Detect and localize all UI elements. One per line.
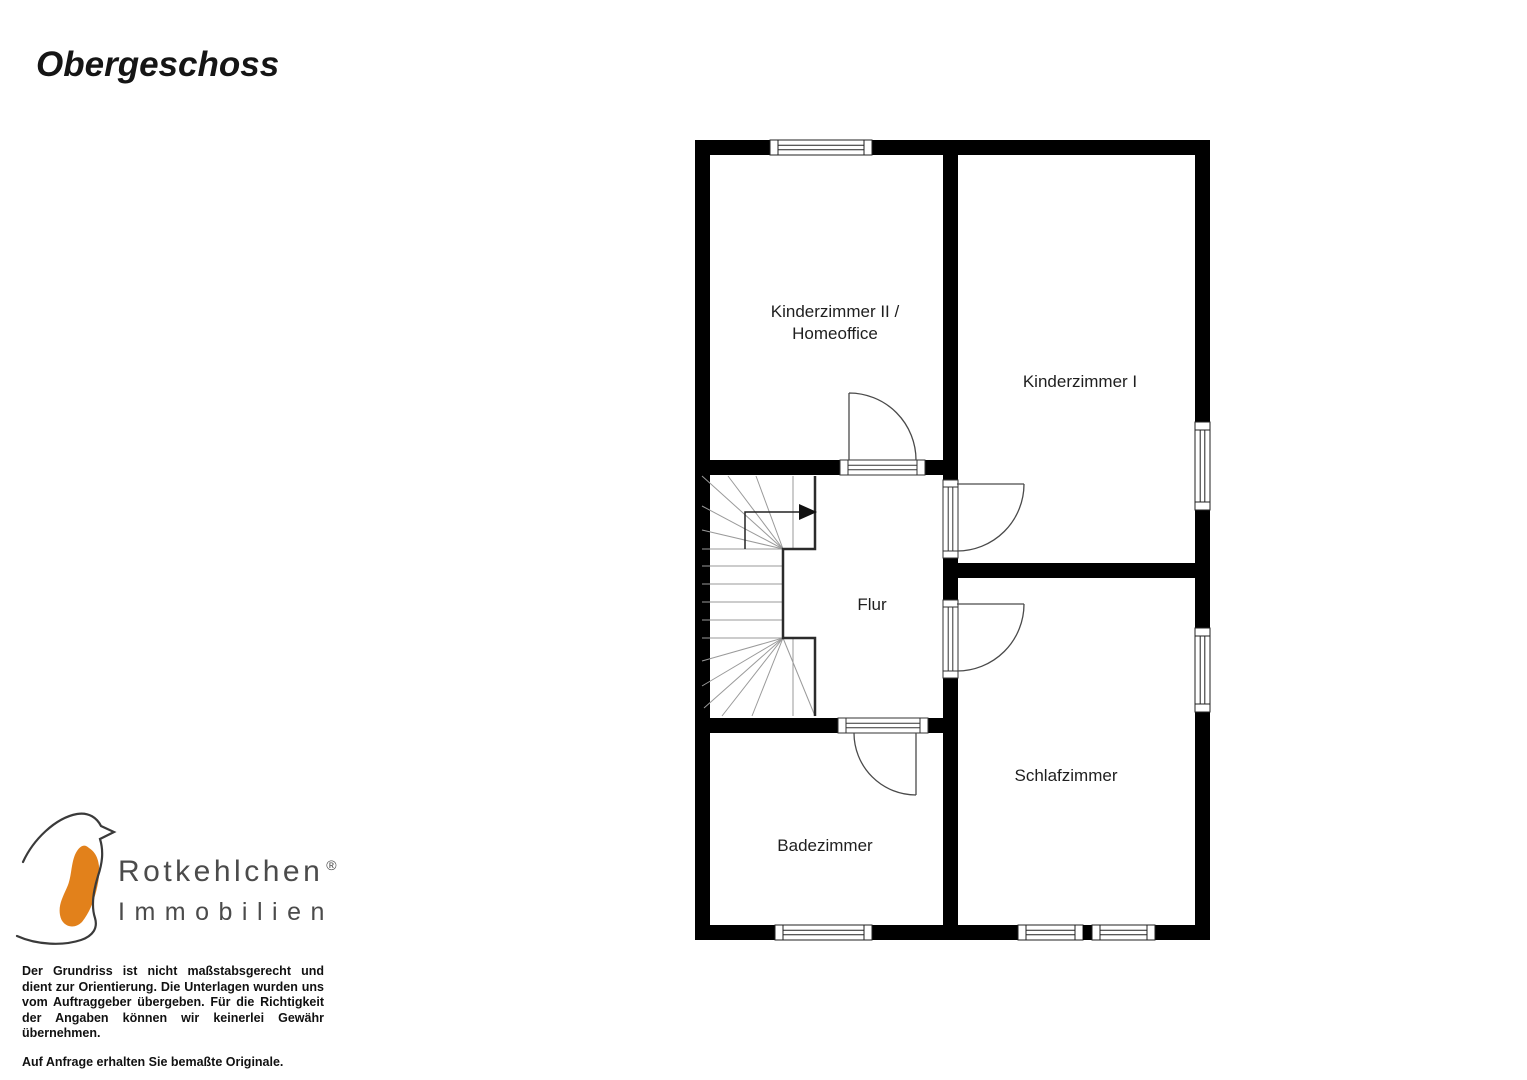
- brand-logo-text: Rotkehlchen® Immobilien: [118, 855, 337, 931]
- door-opening-badezimmer: [838, 718, 928, 733]
- brand-subtitle: Immobilien: [118, 893, 337, 931]
- wall-kinderzimmer2-bottom-left: [695, 460, 840, 475]
- door-opening-kinderzimmer2: [840, 460, 925, 475]
- window-right-kinderzimmer1: [1195, 422, 1210, 510]
- disclaimer: Der Grundriss ist nicht maßstabsgerecht …: [22, 964, 324, 1070]
- floorplan-page: Obergeschoss: [0, 0, 1527, 1080]
- room-label-badezimmer: Badezimmer: [777, 836, 873, 855]
- wall-badezimmer-top-right: [928, 718, 943, 733]
- room-label-flur: Flur: [857, 595, 887, 614]
- disclaimer-paragraph: Der Grundriss ist nicht maßstabsgerecht …: [22, 964, 324, 1042]
- door-opening-schlafzimmer: [943, 600, 958, 678]
- door-swing-kinderzimmer2: [849, 393, 916, 460]
- staircase: [702, 476, 817, 716]
- window-bottom-badezimmer: [775, 925, 872, 940]
- brand-name: Rotkehlchen: [118, 855, 323, 888]
- room-label-schlafzimmer: Schlafzimmer: [1015, 766, 1118, 785]
- room-label-kinderzimmer2-line2: Homeoffice: [792, 324, 878, 343]
- wall-kinderzimmer2-bottom-right: [925, 460, 943, 475]
- room-label-kinderzimmer2-line1: Kinderzimmer II /: [771, 302, 900, 321]
- door-opening-kinderzimmer1: [943, 480, 958, 558]
- wall-badezimmer-top-left: [695, 718, 838, 733]
- brand-name-line: Rotkehlchen®: [118, 855, 337, 893]
- window-right-schlafzimmer: [1195, 628, 1210, 712]
- window-top: [770, 140, 872, 155]
- wall-kinderzimmer1-schlafzimmer: [958, 563, 1195, 578]
- robin-bird-icon: [15, 798, 130, 953]
- door-openings: [838, 460, 958, 733]
- wall-right: [1195, 140, 1210, 940]
- door-swing-kinderzimmer1: [957, 484, 1024, 551]
- door-swings: [849, 393, 1024, 795]
- room-label-kinderzimmer1: Kinderzimmer I: [1023, 372, 1137, 391]
- door-swing-badezimmer: [854, 733, 916, 795]
- window-mullion: [1083, 925, 1092, 940]
- wall-left: [695, 140, 710, 940]
- disclaimer-request-note: Auf Anfrage erhalten Sie bemaßte Origina…: [22, 1055, 324, 1071]
- door-swing-schlafzimmer: [957, 604, 1024, 671]
- registered-trademark-symbol: ®: [326, 857, 336, 873]
- wall-center-lower: [943, 678, 958, 925]
- window-bottom-schlafzimmer-2: [1092, 925, 1155, 940]
- wall-center-upper: [943, 155, 958, 480]
- windows: [770, 140, 1210, 940]
- wall-center-mid: [943, 558, 958, 600]
- window-bottom-schlafzimmer-1: [1018, 925, 1083, 940]
